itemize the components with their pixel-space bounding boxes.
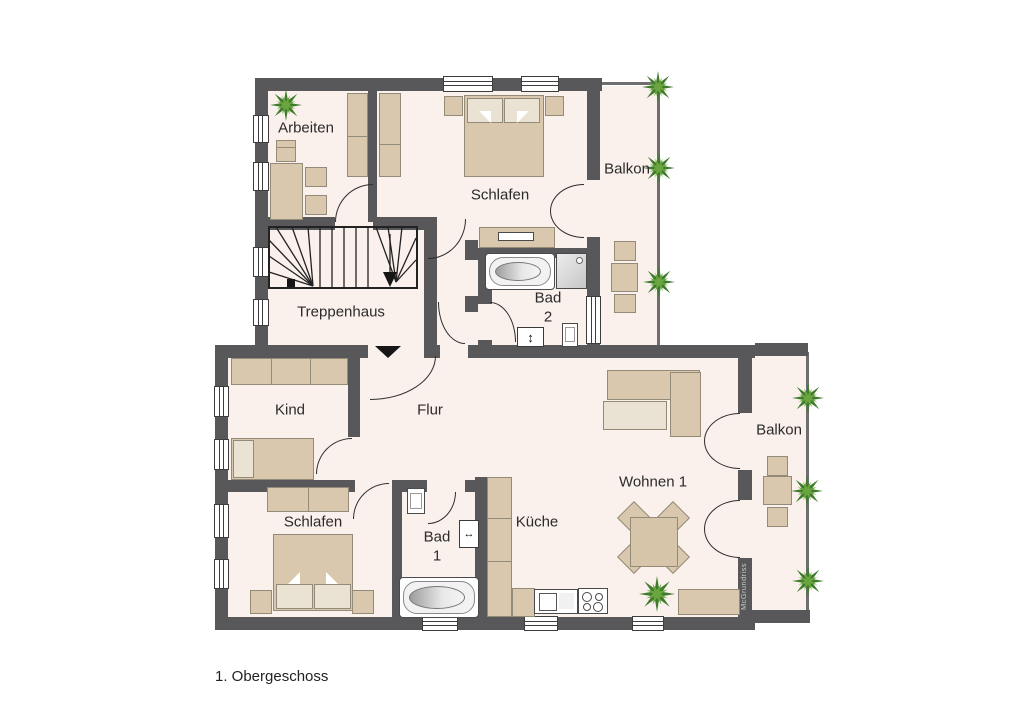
washbasin-icon: ↔: [459, 520, 479, 548]
plant-icon: [643, 266, 675, 303]
page-title: 1. Obergeschoss: [215, 668, 328, 685]
watermark: McGrundriss: [739, 558, 752, 616]
pillow: [233, 440, 254, 478]
balcony-table: [611, 263, 638, 292]
plant-icon: [792, 565, 824, 602]
nightstand: [250, 590, 272, 614]
kitchen-counter: [512, 588, 535, 617]
window: [214, 504, 229, 538]
wardrobe: [231, 358, 348, 385]
window: [422, 616, 458, 631]
window: [521, 76, 559, 92]
room-label-schlafen-unten: Schlafen: [284, 514, 342, 533]
toilet: [562, 323, 578, 347]
window: [443, 76, 493, 92]
chair: [305, 195, 327, 215]
nightstand: [444, 96, 463, 116]
kitchen-sink: [534, 589, 578, 614]
balcony-chair: [614, 241, 636, 261]
plant-icon: [792, 382, 824, 419]
wardrobe: [379, 93, 401, 177]
window: [253, 247, 269, 277]
wall: [738, 358, 752, 413]
window: [632, 616, 664, 631]
toilet: [407, 488, 425, 514]
window: [214, 559, 229, 589]
room-label-treppenhaus: Treppenhaus: [297, 304, 385, 323]
plant-icon: [642, 71, 674, 108]
window: [253, 115, 269, 143]
room-label-kind: Kind: [275, 402, 305, 421]
nightstand: [352, 590, 374, 614]
room-label-schlafen-top: Schlafen: [471, 187, 529, 206]
washer-icon: ↕: [517, 327, 544, 347]
wall: [738, 470, 752, 500]
bathtub: [399, 577, 479, 618]
stove: [578, 588, 608, 614]
wall: [348, 358, 360, 437]
window: [253, 162, 269, 191]
balcony-table: [763, 476, 792, 505]
wall: [587, 91, 600, 180]
pillow: [314, 584, 351, 609]
cabinet: [276, 140, 296, 162]
balcony-chair: [767, 507, 788, 527]
entry-arrow-icon: [375, 346, 401, 358]
bathtub: [485, 253, 555, 290]
blanket-fold: [517, 111, 529, 123]
nightstand: [545, 96, 564, 116]
wall: [465, 296, 478, 312]
chair: [305, 167, 327, 187]
wall: [755, 343, 808, 356]
floor-plan: ↕ ↔: [0, 0, 1024, 724]
plant-icon: [791, 475, 823, 512]
blanket-fold: [479, 111, 491, 123]
plant-icon: [639, 576, 675, 617]
balcony-chair: [614, 294, 636, 313]
dresser-handle: [498, 232, 534, 241]
room-label-flur: Flur: [417, 402, 443, 421]
room-label-wohnen: Wohnen 1: [619, 474, 687, 493]
blanket-fold: [288, 572, 300, 584]
pillow: [276, 584, 313, 609]
balcony-chair: [767, 456, 788, 476]
blanket-fold: [326, 572, 338, 584]
window: [253, 299, 269, 326]
room-label-arbeiten: Arbeiten: [278, 120, 334, 139]
balcony-top-rail-side: [657, 82, 660, 348]
desk: [270, 163, 303, 220]
window: [586, 296, 601, 344]
sofa-arm: [670, 372, 701, 437]
dresser: [267, 487, 349, 512]
wall: [748, 610, 810, 623]
room-label-balkon-rechts: Balkon: [756, 422, 802, 441]
stairs-icon: [268, 226, 418, 290]
room-label-bad1: Bad 1: [424, 528, 451, 566]
window: [524, 616, 558, 631]
coffee-table: [603, 401, 667, 430]
dining-table: [630, 517, 678, 567]
wall: [468, 345, 755, 358]
room-label-bad2: Bad 2: [535, 289, 562, 327]
wall: [465, 240, 478, 260]
kitchen-counter: [487, 477, 512, 617]
room-label-balkon-top: Balkon: [604, 161, 650, 180]
room-label-kueche: Küche: [516, 514, 559, 533]
window: [214, 439, 229, 470]
wardrobe: [347, 93, 368, 177]
sideboard: [678, 589, 740, 615]
window: [214, 386, 229, 417]
washbasin: [556, 253, 587, 289]
wall: [215, 345, 368, 358]
